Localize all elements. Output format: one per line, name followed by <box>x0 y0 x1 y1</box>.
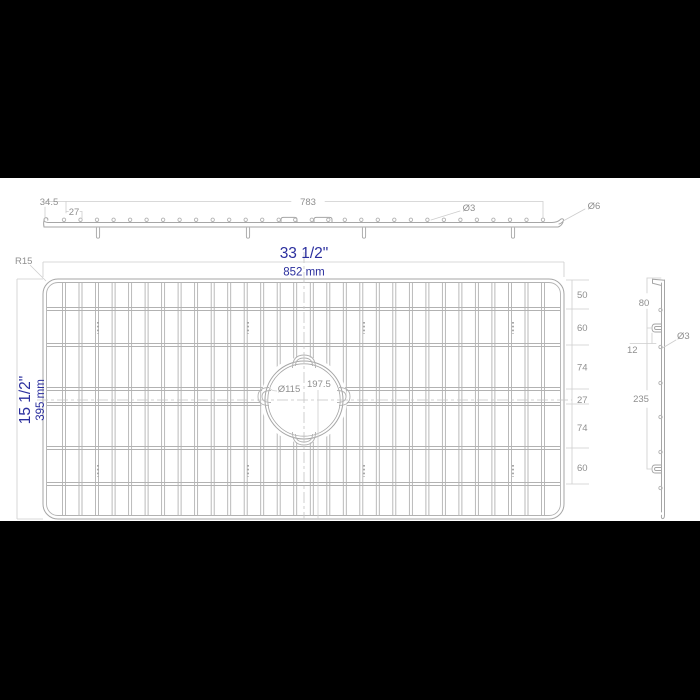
dim-row-gap-4: 74 <box>577 423 588 434</box>
dim-row-gap-2: 74 <box>577 363 588 374</box>
dim-height-inch: 15 1/2" <box>17 376 34 425</box>
dim-row-gap-3: 27 <box>577 395 588 406</box>
dim-row-gap-0: 50 <box>577 290 588 301</box>
dim-wire-pitch: 27 <box>69 207 80 218</box>
dim-hook-span: 235 <box>633 394 649 405</box>
dim-height-mm: 395 mm <box>35 379 47 421</box>
dim-hook-offset: 12 <box>627 345 638 356</box>
drawing-canvas: 34.5 27 783 Ø3 Ø6 <box>0 0 700 700</box>
dim-top-to-hook: 80 <box>639 298 650 309</box>
drawing-sheet <box>0 178 700 521</box>
dim-wire-span: 783 <box>300 197 316 208</box>
technical-drawing: 34.5 27 783 Ø3 Ø6 <box>0 0 700 700</box>
letterbox-bottom <box>0 521 700 700</box>
dim-width-inch: 33 1/2" <box>280 245 329 262</box>
dim-end-wire-diameter: Ø3 <box>677 331 690 342</box>
dim-frame-diameter: Ø6 <box>588 201 601 212</box>
dim-width-mm: 852 mm <box>283 267 325 279</box>
dim-wire-diameter: Ø3 <box>463 203 476 214</box>
dim-row-gap-5: 60 <box>577 463 588 474</box>
dim-hole-diameter: Ø115 <box>278 384 301 395</box>
dim-corner-radius: R15 <box>15 256 32 267</box>
dim-edge-offset: 34.5 <box>40 197 59 208</box>
letterbox-top <box>0 0 700 178</box>
dim-row-gap-1: 60 <box>577 323 588 334</box>
dim-hole-center-offset: 197.5 <box>307 379 331 390</box>
